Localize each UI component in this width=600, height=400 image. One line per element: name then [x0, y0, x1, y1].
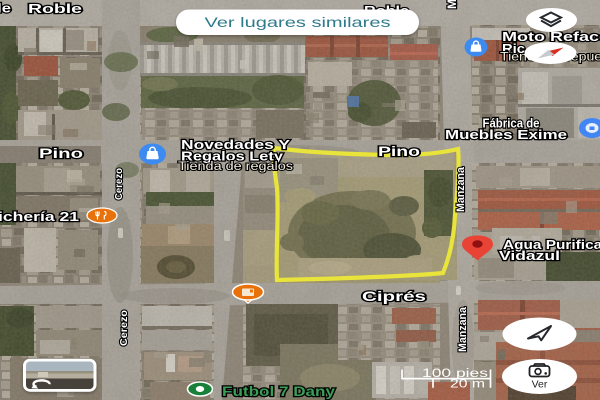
svg-text:Pino: Pino: [39, 145, 83, 161]
svg-text:Pino: Pino: [378, 143, 420, 159]
svg-text:Ver: Ver: [532, 379, 548, 391]
svg-text:Roble: Roble: [28, 1, 82, 16]
svg-text:Manzana: Manzana: [457, 306, 469, 352]
svg-text:Manzana: Manzana: [455, 166, 467, 212]
svg-text:Cerezo: Cerezo: [118, 310, 130, 346]
svg-text:Futbol 7 Dany: Futbol 7 Dany: [222, 384, 336, 399]
svg-text:20 m: 20 m: [450, 379, 485, 391]
svg-text:ichería 21: ichería 21: [0, 209, 79, 224]
svg-text:Muebles Exime: Muebles Exime: [445, 127, 567, 142]
svg-text:Cerezo: Cerezo: [113, 168, 125, 200]
svg-text:ble: ble: [0, 1, 11, 16]
svg-text:Ver lugares similares: Ver lugares similares: [205, 14, 391, 30]
svg-text:Ciprés: Ciprés: [362, 288, 426, 304]
svg-text:Vidazul: Vidazul: [499, 248, 560, 263]
svg-text:M: M: [445, 0, 459, 9]
svg-text:Tienda de regalos: Tienda de regalos: [178, 161, 293, 173]
